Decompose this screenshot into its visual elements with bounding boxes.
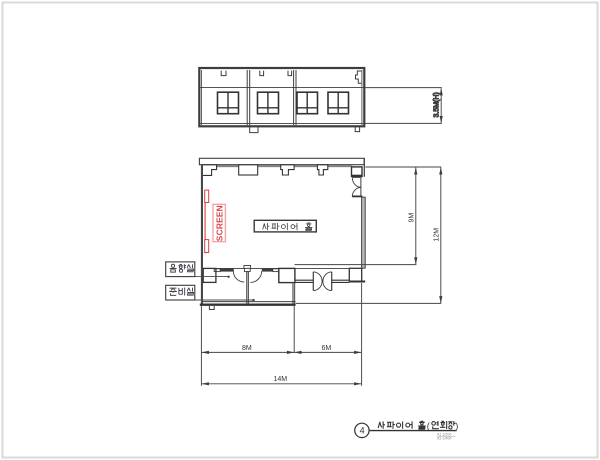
svg-text:6M: 6M: [322, 345, 332, 352]
svg-text:(: (: [427, 421, 430, 431]
svg-text:SCREEN: SCREEN: [214, 205, 224, 241]
svg-text:A3 1/400: A3 1/400: [437, 437, 451, 441]
svg-text:14M: 14M: [274, 376, 288, 383]
svg-text:12M: 12M: [433, 228, 440, 242]
svg-text:): ): [455, 421, 458, 431]
svg-text:4: 4: [360, 426, 365, 436]
svg-text:3.5M(H): 3.5M(H): [434, 92, 441, 117]
svg-text:9M: 9M: [408, 213, 415, 223]
svg-text:8M: 8M: [242, 345, 252, 352]
